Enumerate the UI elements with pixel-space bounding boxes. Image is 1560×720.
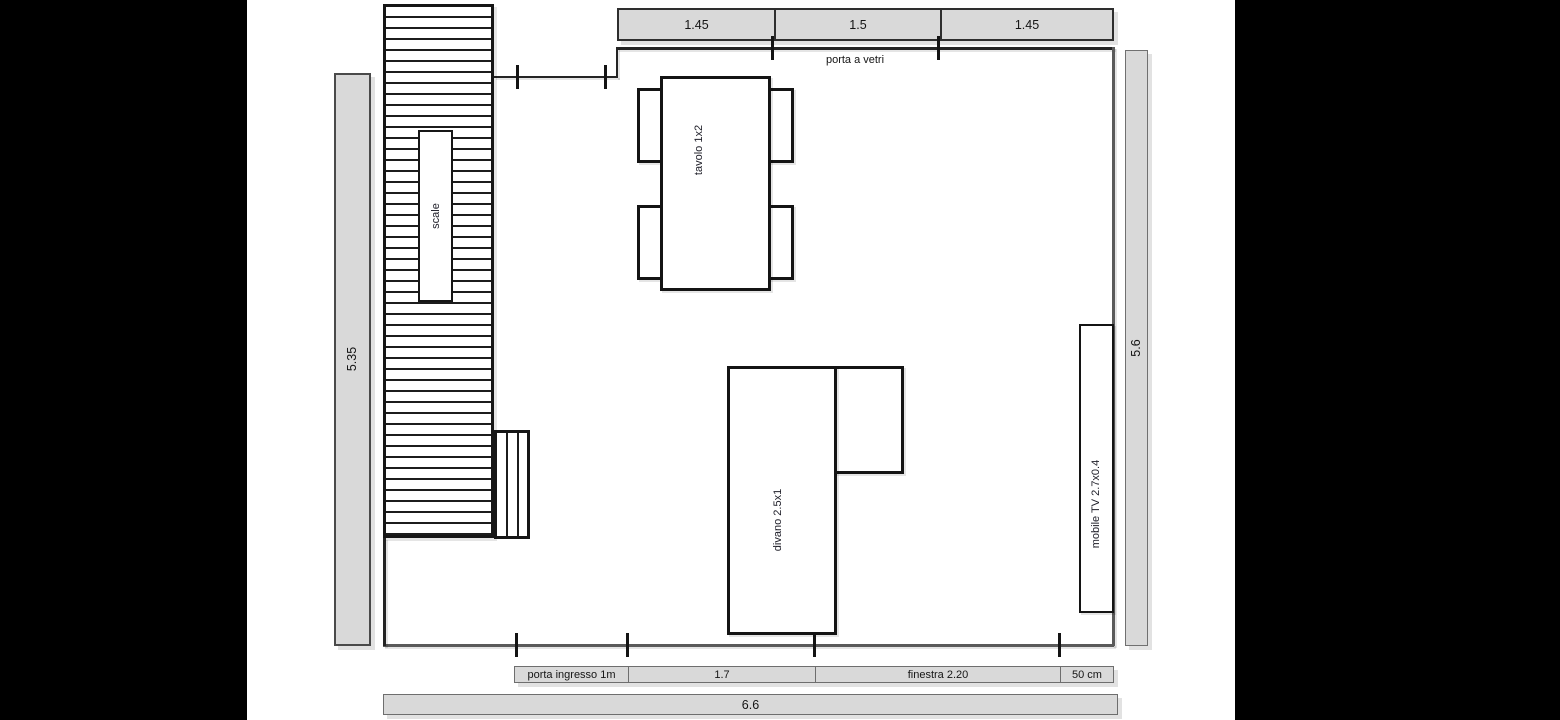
dining-table [660,76,771,291]
stairs-label: scale [430,203,442,229]
chair [768,88,794,163]
tick-mark [771,36,774,60]
dimension-cell: 1.7 [628,667,815,682]
right-dimension-label: 5.6 [1129,339,1143,356]
tick-mark [937,36,940,60]
dining-table-label: tavolo 1x2 [693,125,705,175]
sofa-chaise [834,366,904,474]
left-wall [383,538,386,646]
floor-plan-canvas: 1.45 1.5 1.45 porta a vetri scale tavolo… [0,0,1560,720]
tick-mark [626,633,629,657]
dimension-cell-window: finestra 2.20 [815,667,1060,682]
tv-cabinet-label: mobile TV 2.7x0.4 [1090,460,1102,548]
dimension-cell: 1.45 [619,10,774,39]
tick-mark [516,65,519,89]
chair [768,205,794,280]
total-width-bar: 6.6 [383,694,1118,715]
stairs-side-box [494,430,530,539]
dimension-cell-entrance-door: porta ingresso 1m [515,667,628,682]
bottom-wall [383,644,1114,647]
top-wall [617,47,1114,50]
bottom-dimension-row: porta ingresso 1m 1.7 finestra 2.20 50 c… [514,666,1114,683]
dimension-cell: 1.45 [940,10,1112,39]
dimension-cell: 1.5 [774,10,940,39]
tick-mark [604,65,607,89]
top-dimension-bar: 1.45 1.5 1.45 [617,8,1114,41]
tick-mark [813,633,816,657]
sofa-label: divano 2.5x1 [772,489,784,551]
left-dimension-label: 5.35 [345,347,359,371]
dimension-cell: 50 cm [1060,667,1113,682]
stairs-passage-wall [494,76,618,78]
wall-jog [616,47,619,78]
tick-mark [515,633,518,657]
tick-mark [1058,633,1061,657]
glass-door-label: porta a vetri [826,54,884,66]
